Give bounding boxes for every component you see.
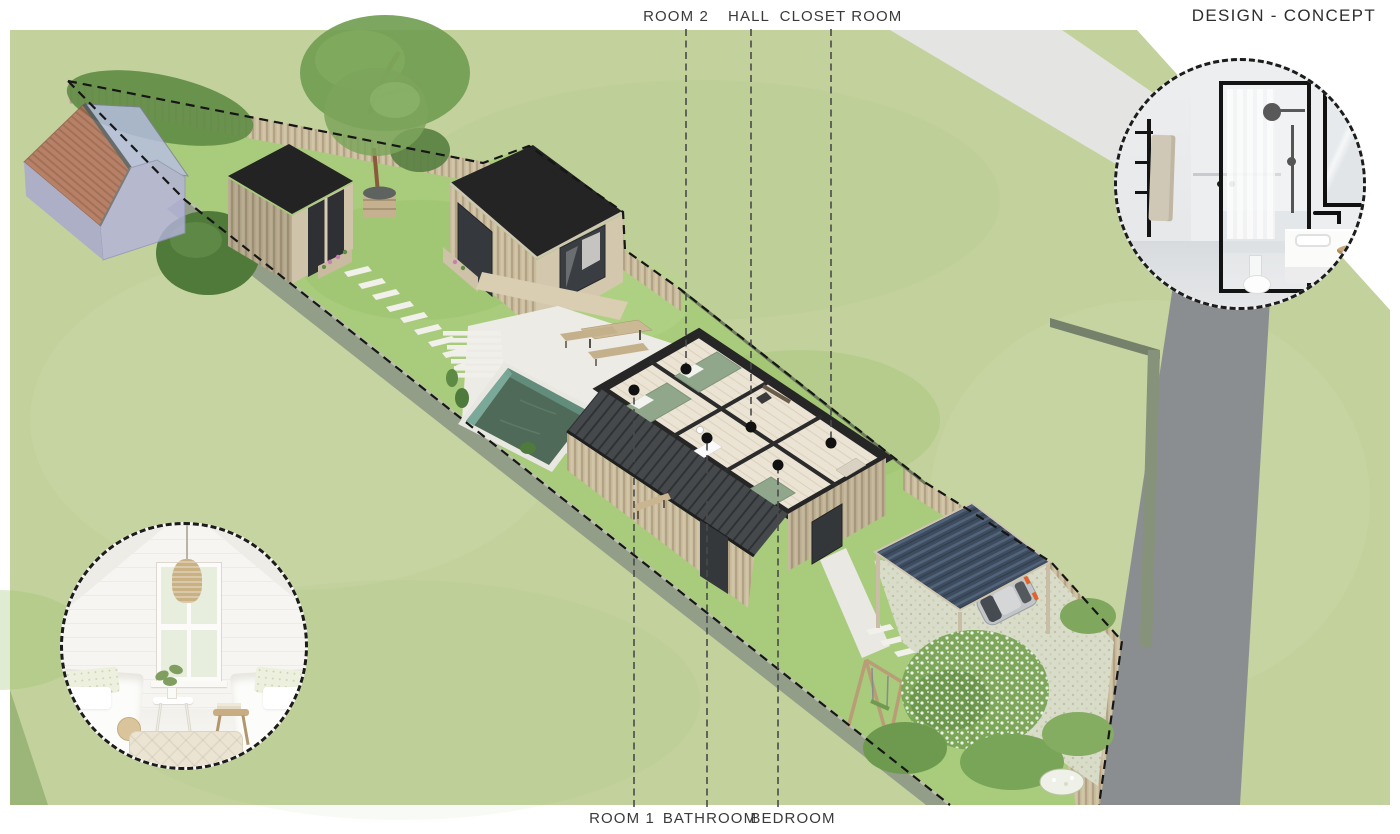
towel-rail-rung bbox=[1135, 131, 1153, 134]
pendant-cord bbox=[186, 525, 188, 561]
wooden-tray bbox=[1337, 245, 1366, 256]
toilet bbox=[1243, 275, 1271, 294]
wall-faucet bbox=[1337, 211, 1341, 224]
rattan-pendant-lamp bbox=[172, 559, 202, 603]
bedroom-photo-inset bbox=[60, 522, 308, 770]
toilet bbox=[697, 427, 704, 434]
callout-label-room-1: ROOM 1 bbox=[589, 810, 655, 827]
plant-pot bbox=[167, 687, 177, 699]
bathroom-mirror bbox=[1323, 87, 1366, 207]
pillow bbox=[263, 687, 308, 709]
pillow bbox=[60, 687, 111, 709]
plant bbox=[163, 677, 177, 686]
pool-plant bbox=[446, 369, 458, 387]
callout-label-hall: HALL bbox=[728, 8, 770, 25]
pool-plant bbox=[455, 388, 469, 408]
design-concept-board: ROOM 2HALLCLOSET ROOM ROOM 1BATHROOMBEDR… bbox=[0, 0, 1400, 834]
bathroom-photo-inset bbox=[1114, 58, 1366, 310]
wash-basin bbox=[1295, 234, 1331, 247]
flower-bed bbox=[1040, 769, 1084, 795]
callout-label-closet-room: CLOSET ROOM bbox=[780, 8, 903, 25]
rug bbox=[129, 731, 243, 770]
callout-label-room-2: ROOM 2 bbox=[643, 8, 709, 25]
window-mullion bbox=[161, 624, 217, 630]
callout-label-bedroom: BEDROOM bbox=[750, 810, 835, 827]
design-title: DESIGN - CONCEPT bbox=[1192, 6, 1376, 26]
towel bbox=[1149, 135, 1176, 222]
pool-plant bbox=[520, 442, 536, 454]
callout-label-bathroom: BATHROOM bbox=[663, 810, 757, 827]
books bbox=[217, 703, 241, 706]
